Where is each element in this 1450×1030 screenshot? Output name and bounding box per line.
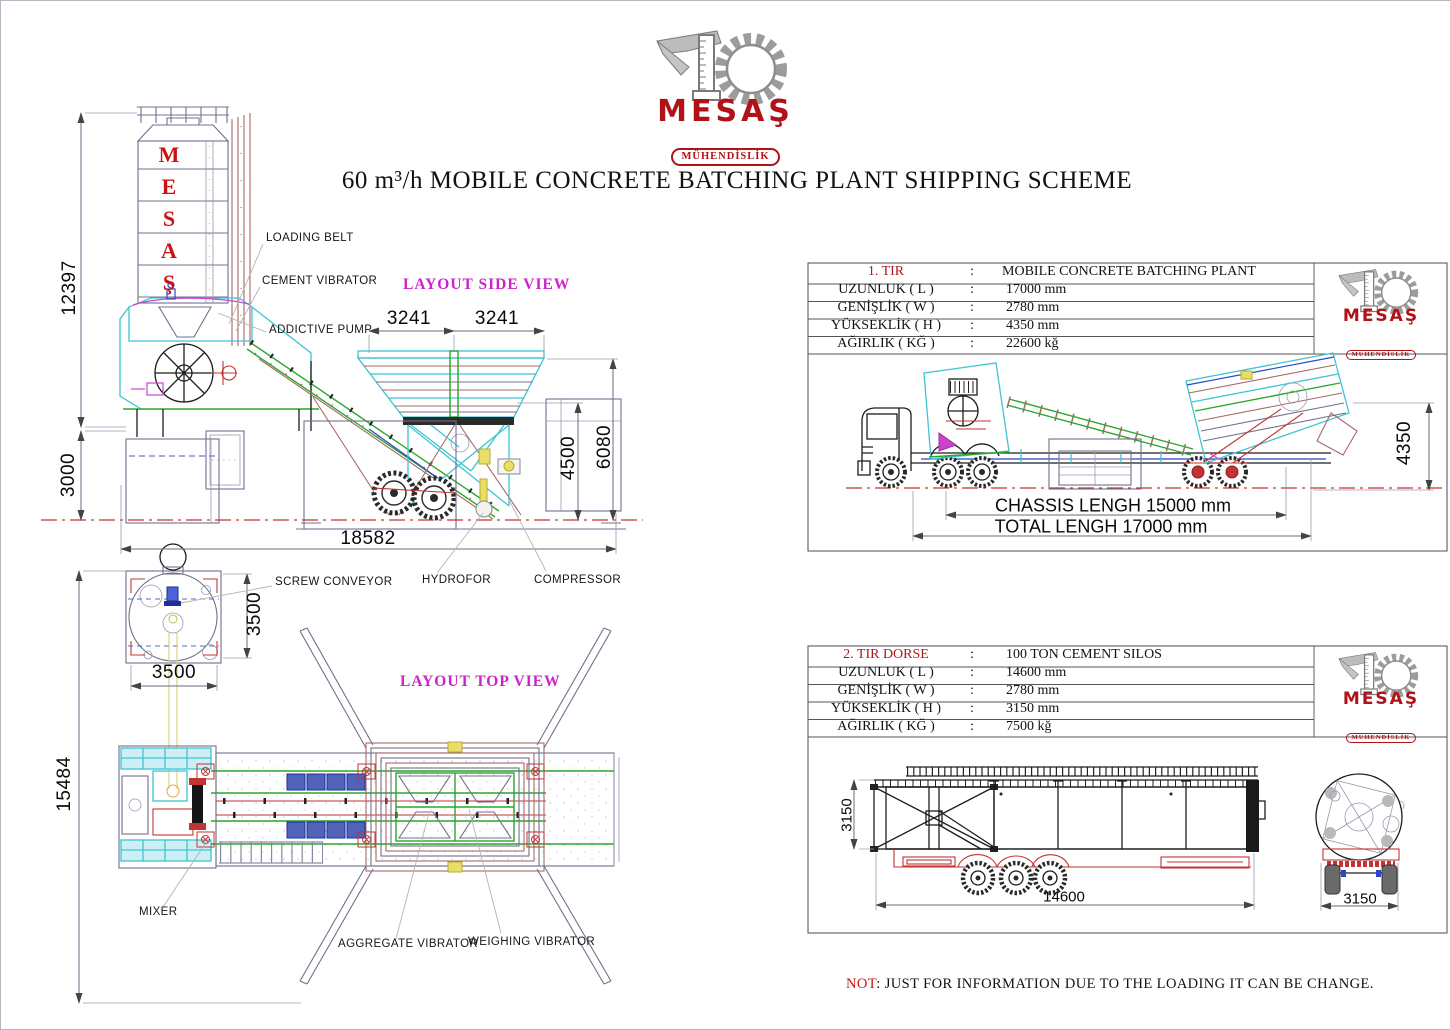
table-row: GENİŞLİK ( W ):2780 mm	[808, 683, 1314, 701]
page-title: 60 m³/h MOBILE CONCRETE BATCHING PLANT S…	[342, 167, 1132, 195]
row-separator: :	[962, 282, 982, 298]
dim-truck-height: 4350	[1394, 421, 1416, 465]
dim-foundation-height: 3000	[58, 453, 80, 497]
table-row: UZUNLUK ( L ):17000 mm	[808, 282, 1314, 300]
row-separator: :	[962, 300, 982, 316]
side-view-frames	[41, 399, 643, 529]
label-loading-belt: LOADING BELT	[266, 232, 354, 244]
table-row: 2. TIR DORSE:100 TON CEMENT SILOS	[808, 647, 1314, 665]
side-view-cabinet-foundation	[126, 431, 244, 523]
side-view-title: LAYOUT SIDE VIEW	[403, 276, 570, 294]
brand-logo-box2: MESAŞ MÜHENDİSLİK	[1323, 650, 1439, 744]
footer-note: NOT: JUST FOR INFORMATION DUE TO THE LOA…	[846, 976, 1374, 993]
row-value: 2780 mm	[1006, 683, 1059, 699]
row-label: 2. TIR DORSE	[810, 647, 962, 663]
row-label: YÜKSEKLİK ( H )	[810, 701, 962, 717]
brand-wordmark: MESAŞ	[1323, 691, 1439, 708]
row-separator: :	[962, 318, 982, 334]
brand-subtitle: MÜHENDİSLİK	[671, 148, 779, 166]
silo-letter: S	[163, 206, 175, 232]
brand-logo-box1: MESAŞ MÜHENDİSLİK	[1323, 267, 1439, 361]
table-row: UZUNLUK ( L ):14600 mm	[808, 665, 1314, 683]
label-screw-conveyor: SCREW CONVEYOR	[275, 576, 392, 588]
brand-wordmark: MESAŞ	[633, 97, 818, 127]
brand-subtitle: MÜHENDİSLİK	[1346, 350, 1417, 360]
table-row: GENİŞLİK ( W ):2780 mm	[808, 300, 1314, 318]
table-row: 1. TIR:MOBILE CONCRETE BATCHING PLANT	[808, 264, 1314, 282]
row-separator: :	[962, 683, 982, 699]
row-separator: :	[962, 647, 982, 663]
silo-letter: Ş	[163, 270, 175, 296]
label-cement-vibrator: CEMENT VIBRATOR	[262, 275, 377, 287]
side-view-mixer-section	[120, 282, 319, 437]
dim-bin-left: 3241	[387, 308, 431, 330]
table-row: YÜKSEKLİK ( H ):3150 mm	[808, 701, 1314, 719]
row-value: 17000 mm	[1006, 282, 1066, 298]
table-row: YÜKSEKLİK ( H ):4350 mm	[808, 318, 1314, 336]
trailer-chassis	[894, 849, 1251, 868]
row-value: MOBILE CONCRETE BATCHING PLANT	[974, 264, 1284, 280]
row-value: 14600 mm	[1006, 665, 1066, 681]
dim-trailer-height: 3150	[839, 798, 856, 831]
note-text: : JUST FOR INFORMATION DUE TO THE LOADIN…	[876, 976, 1374, 992]
row-separator: :	[962, 336, 982, 352]
dim-trailer-length: 14600	[1043, 889, 1085, 906]
dim-bin-height: 4500	[558, 436, 580, 480]
row-label: GENİŞLİK ( W )	[810, 683, 962, 699]
row-label: 1. TIR	[810, 264, 962, 280]
row-label: UZUNLUK ( L )	[810, 282, 962, 298]
dim-chassis-length: CHASSIS LENGH 15000 mm	[995, 496, 1231, 517]
row-label: YÜKSEKLİK ( H )	[810, 318, 962, 334]
row-label: AĞIRLIK ( KĞ )	[810, 719, 962, 735]
row-value: 100 TON CEMENT SILOS	[1006, 647, 1162, 663]
row-value: 4350 mm	[1006, 318, 1059, 334]
silo-letter: A	[161, 238, 177, 264]
label-aggregate-vibrator: AGGREGATE VIBRATOR	[338, 938, 478, 950]
brand-wordmark: MESAŞ	[1323, 308, 1439, 325]
dim-silo-top-width: 3500	[244, 592, 266, 636]
row-label: GENİŞLİK ( W )	[810, 300, 962, 316]
dim-trailer-rear-width: 3150	[1343, 891, 1376, 908]
drawing-sheet: .ln{stroke:#70708c;fill:none;stroke-widt…	[0, 0, 1450, 1030]
row-label: AĞIRLIK ( KĞ )	[810, 336, 962, 352]
label-addictive-pump: ADDICTIVE PUMP	[269, 324, 372, 336]
dim-plant-length: 15484	[54, 756, 76, 811]
row-value: 2780 mm	[1006, 300, 1059, 316]
brand-logo: MESAŞ MÜHENDİSLİK	[633, 27, 818, 166]
dim-total-length: 18582	[340, 528, 395, 550]
silo-letter: M	[159, 142, 180, 168]
note-prefix: NOT	[846, 976, 876, 992]
dim-total-truck-length: TOTAL LENGH 17000 mm	[995, 517, 1208, 538]
table-row: AĞIRLIK ( KĞ ):22600 kğ	[808, 336, 1314, 354]
truck-wheels	[877, 444, 1247, 486]
brand-subtitle: MÜHENDİSLİK	[1346, 733, 1417, 743]
row-value: 22600 kğ	[1006, 336, 1059, 352]
row-value: 7500 kğ	[1006, 719, 1052, 735]
row-separator: :	[962, 719, 982, 735]
silo-letter: E	[162, 174, 177, 200]
label-mixer: MIXER	[139, 906, 177, 918]
row-separator: :	[962, 701, 982, 717]
top-view-title: LAYOUT TOP VIEW	[400, 673, 561, 691]
dim-silo-height: 12397	[59, 260, 81, 315]
label-compressor: COMPRESSOR	[534, 574, 621, 586]
table-row: AĞIRLIK ( KĞ ):7500 kğ	[808, 719, 1314, 737]
label-weighing-vibrator: WEIGHING VIBRATOR	[468, 936, 595, 948]
label-hydrofor: HYDROFOR	[422, 574, 491, 586]
row-label: UZUNLUK ( L )	[810, 665, 962, 681]
dim-overall-height: 6080	[594, 425, 616, 469]
side-view-silo	[137, 107, 229, 303]
dim-silo-top-depth: 3500	[152, 662, 196, 684]
row-value: 3150 mm	[1006, 701, 1059, 717]
side-view-wheels	[373, 473, 456, 518]
dim-bin-right: 3241	[475, 308, 519, 330]
row-separator: :	[962, 665, 982, 681]
